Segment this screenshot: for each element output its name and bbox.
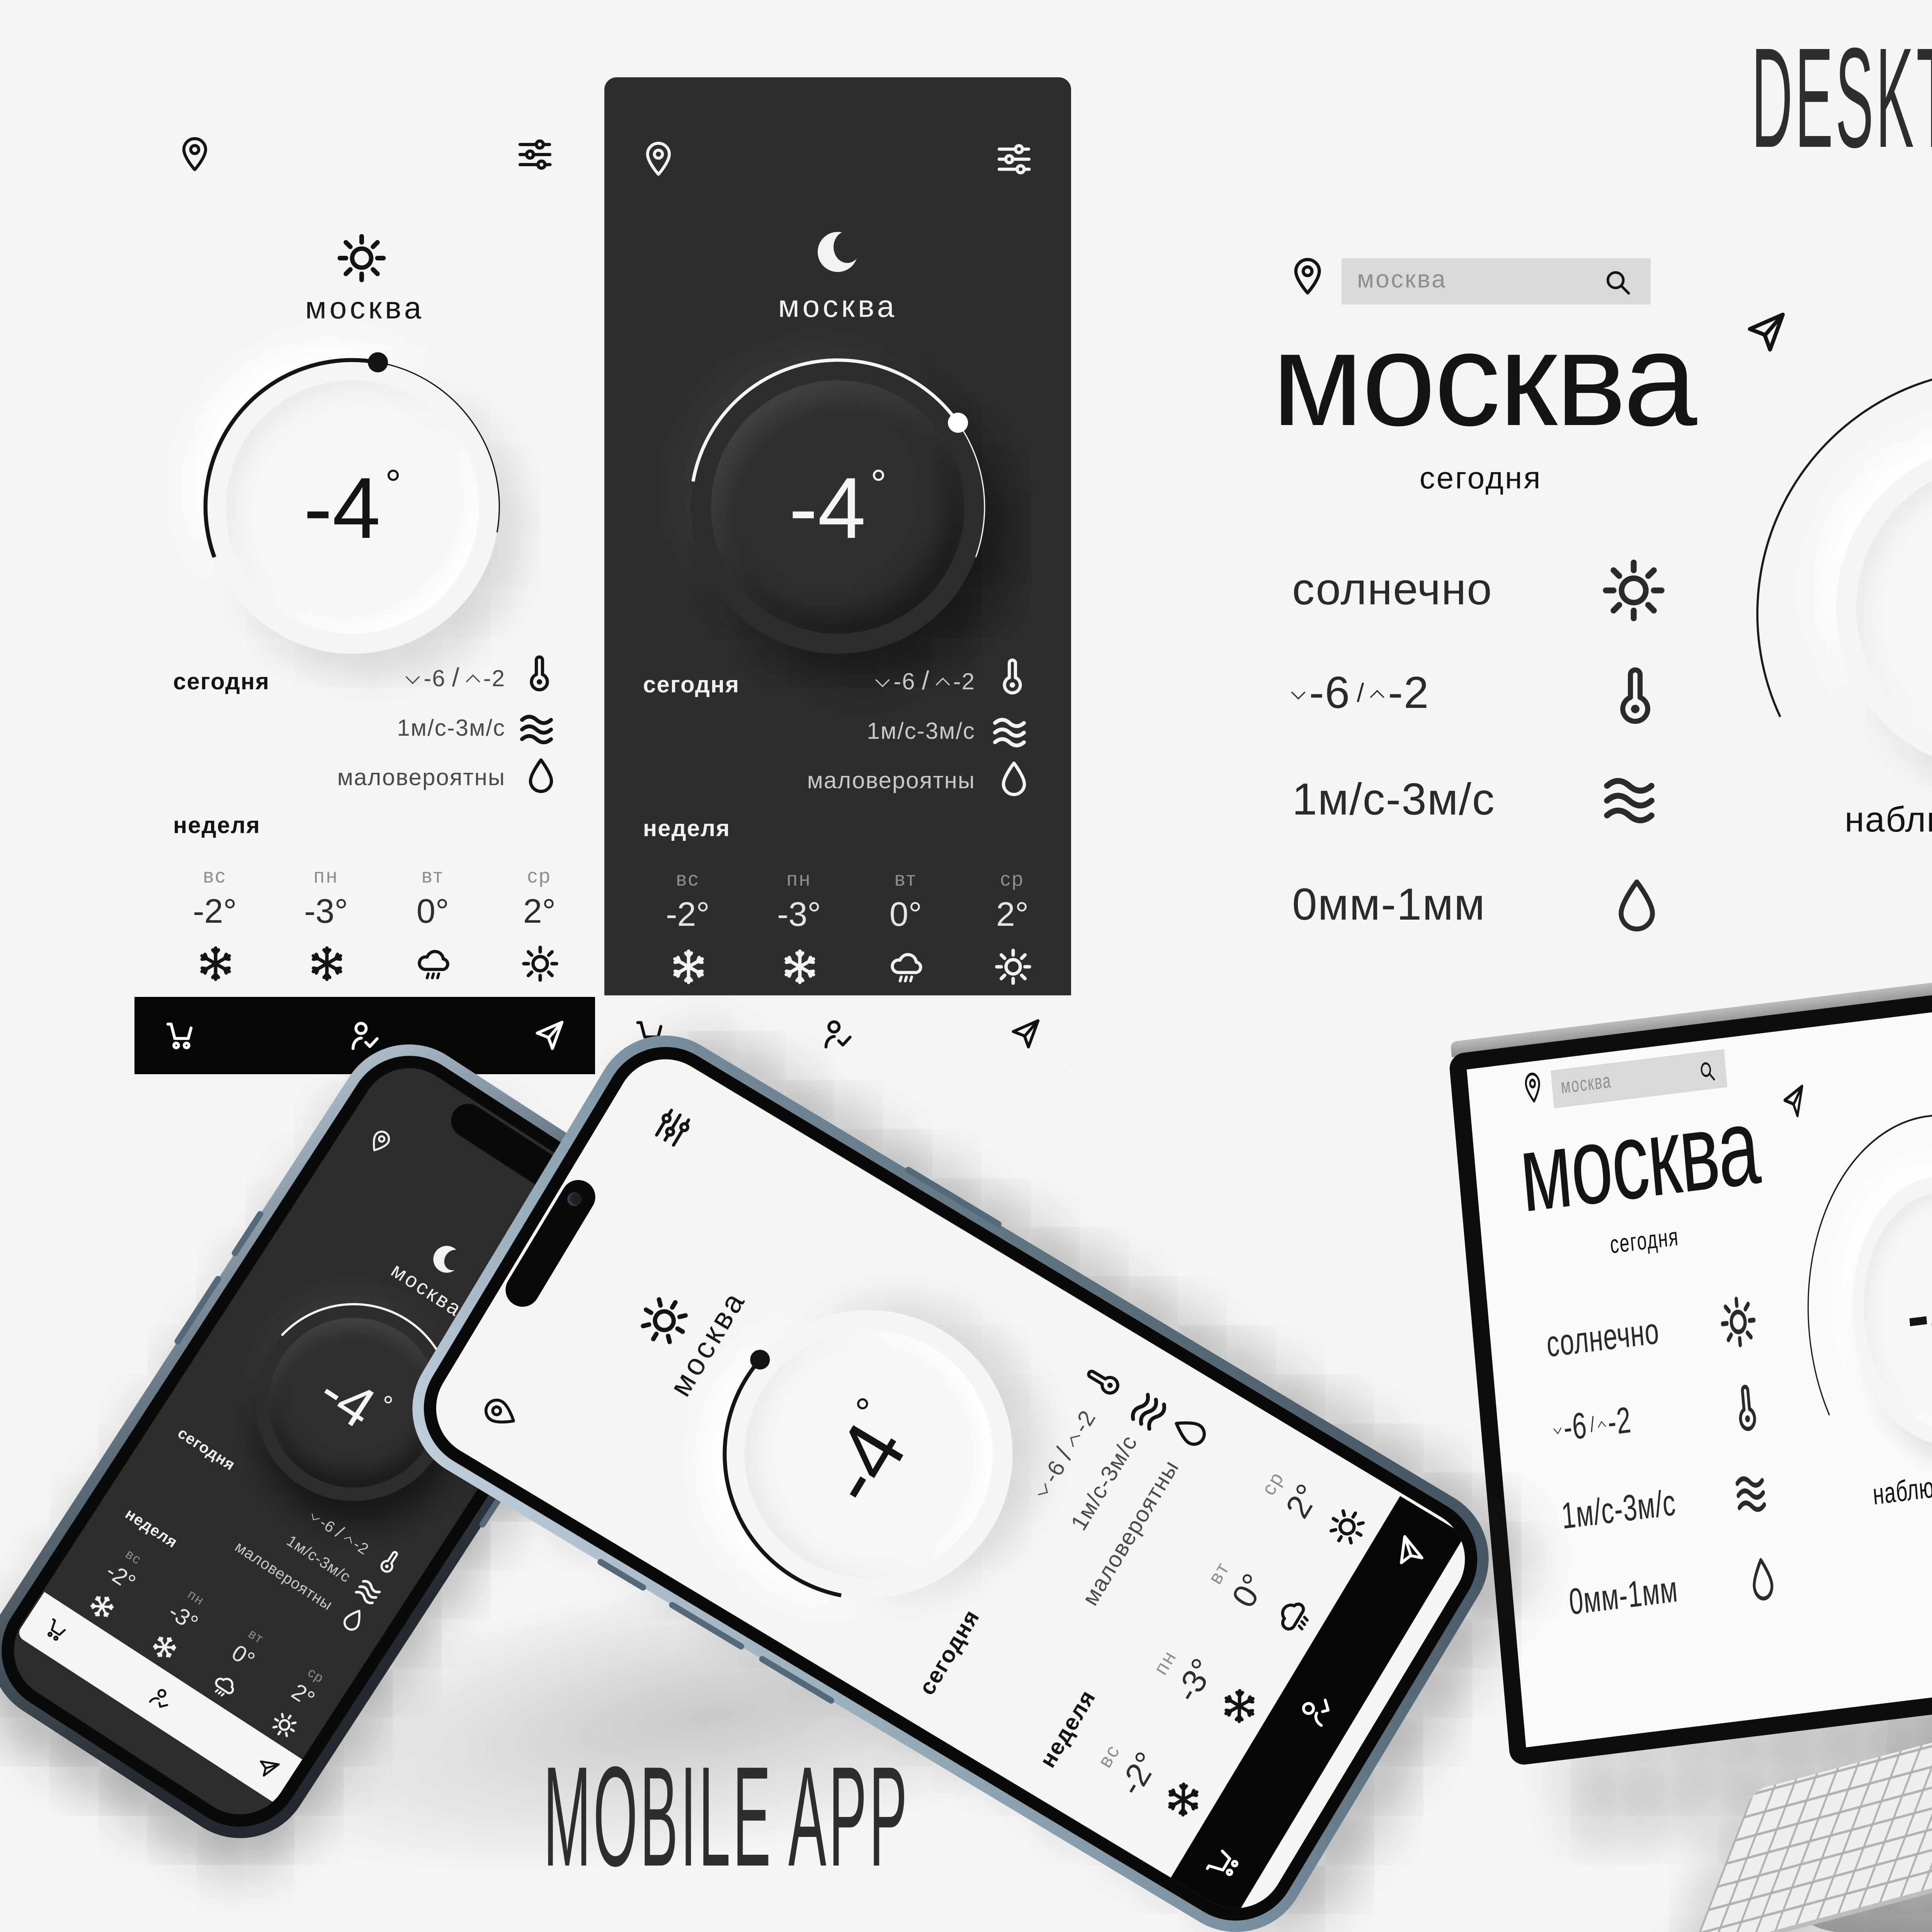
- rain-cloud-icon: [385, 943, 481, 985]
- location-icon: [474, 1386, 528, 1440]
- navigate-button[interactable]: [1006, 1015, 1043, 1053]
- navigate-button: [1384, 1529, 1434, 1579]
- daylight-arc: [683, 352, 992, 662]
- minmax-row: -6 / -2: [1552, 1376, 1768, 1458]
- day-forecast[interactable]: пн-3°: [751, 867, 847, 988]
- sunset-preposition: в: [1768, 849, 1932, 879]
- thermometer-icon: [1725, 1376, 1768, 1437]
- today-label: сегодня: [643, 672, 740, 699]
- condition-row: солнечно: [1544, 1291, 1760, 1375]
- minmax-row: -6 / -2: [1292, 660, 1669, 728]
- day-forecast[interactable]: ср2°: [492, 864, 587, 985]
- today-wind: 1м/с-3м/с: [759, 719, 975, 745]
- account-button[interactable]: [346, 1017, 383, 1054]
- search-icon[interactable]: [1697, 1057, 1717, 1085]
- droplet-icon: [992, 757, 1036, 801]
- chevron-up-icon: [935, 677, 949, 692]
- temperature-dial: -4°: [1836, 444, 1932, 771]
- sun-icon: [964, 946, 1060, 988]
- droplet-icon: [519, 754, 563, 798]
- snowflake-icon: [278, 943, 374, 985]
- sunset-caption: наблюдайте закат: [1768, 799, 1932, 841]
- mobile-screen-light: москва -4° сегодня -6 / -2 1м/с-3м/с мал…: [134, 104, 595, 1074]
- location-icon[interactable]: [175, 134, 215, 175]
- precip-row: 0мм-1мм: [1567, 1551, 1783, 1630]
- location-icon[interactable]: [638, 139, 679, 179]
- thermometer-icon: [370, 1541, 410, 1581]
- sun-icon: [1598, 555, 1669, 626]
- wind-icon: [1598, 765, 1669, 836]
- navigate-button[interactable]: [530, 1017, 567, 1054]
- city-label: москва: [134, 292, 595, 328]
- monitor-screen: москва сегодня солнечно -6 / -2 1м/с-3м/…: [1467, 961, 1932, 1747]
- desktop-ui: москва сегодня солнечно -6 / -2 1м/с-3м/…: [1221, 252, 1932, 986]
- snowflake-icon: [167, 943, 263, 985]
- design-canvas: москва -4° сегодня -6 / -2 1м/с-3м/с мал…: [0, 0, 1932, 1932]
- week-label: неделя: [643, 816, 730, 842]
- location-icon[interactable]: [1519, 1069, 1547, 1107]
- sunset-time: 16:55: [1768, 879, 1932, 927]
- settings-sliders-icon: [645, 1101, 699, 1155]
- cart-button: [1199, 1838, 1248, 1888]
- thermometer-icon: [1073, 1351, 1131, 1410]
- daylight-arc: [198, 352, 507, 662]
- wind-row: 1м/с-3м/с: [1559, 1462, 1776, 1546]
- day-forecast[interactable]: пн-3°: [278, 864, 374, 985]
- navigate-button: [249, 1750, 284, 1784]
- chevron-up-icon: [1370, 690, 1384, 704]
- today-precip: маловероятны: [227, 765, 505, 791]
- city-title: москва: [1221, 314, 1747, 447]
- today-minmax: -6 / -2: [759, 666, 975, 697]
- day-forecast[interactable]: вт0°: [858, 867, 954, 988]
- wind-icon: [516, 706, 563, 753]
- chevron-down-icon: [406, 669, 420, 683]
- sun-icon: [1716, 1291, 1760, 1354]
- wind-icon: [1731, 1462, 1776, 1525]
- settings-sliders-icon[interactable]: [515, 134, 555, 175]
- snowflake-icon: [640, 946, 736, 988]
- location-icon[interactable]: [1286, 255, 1329, 298]
- chevron-down-icon: [876, 672, 890, 686]
- mobile-screen-dark: москва -4° сегодня -6 / -2 1м/с-3м/с мал…: [604, 77, 1071, 1073]
- account-button[interactable]: [819, 1015, 856, 1053]
- monitor-mockup: москва сегодня солнечно -6 / -2 1м/с-3м/…: [1448, 942, 1932, 1767]
- cart-button: [39, 1613, 73, 1648]
- sun-icon: [334, 230, 389, 286]
- today-label: сегодня: [173, 669, 270, 696]
- cart-button[interactable]: [162, 1017, 199, 1054]
- thermometer-icon: [1601, 660, 1669, 728]
- precip-row: 0мм-1мм: [1292, 873, 1669, 938]
- day-forecast[interactable]: вт0°: [385, 864, 481, 985]
- thermometer-icon: [991, 654, 1034, 697]
- wind-row: 1м/с-3м/с: [1292, 765, 1669, 836]
- droplet-icon: [1742, 1551, 1783, 1608]
- search-icon[interactable]: [1601, 266, 1634, 298]
- moon-icon: [808, 223, 867, 281]
- week-label: неделя: [173, 813, 260, 839]
- desktop-ui-on-monitor: москва сегодня солнечно -6 / -2 1м/с-3м/…: [1483, 974, 1932, 1674]
- desktop-app-heading: DESKTOP APP: [1577, 56, 1932, 139]
- droplet-icon: [1604, 873, 1669, 938]
- day-forecast[interactable]: ср2°: [964, 867, 1060, 988]
- day-forecast[interactable]: вс-2°: [640, 867, 736, 988]
- current-temperature: -4°: [1836, 444, 1932, 771]
- today-label: сегодня: [1345, 462, 1617, 498]
- account-button: [144, 1682, 179, 1716]
- location-icon: [361, 1123, 398, 1160]
- chevron-down-icon: [1291, 684, 1305, 699]
- city-label: москва: [604, 291, 1071, 326]
- rain-cloud-icon: [858, 946, 954, 988]
- condition-row: солнечно: [1292, 555, 1669, 626]
- day-forecast[interactable]: вс-2°: [167, 864, 263, 985]
- chevron-up-icon: [465, 674, 480, 689]
- account-button: [1291, 1684, 1341, 1734]
- thermometer-icon: [518, 651, 561, 694]
- sun-icon: [492, 943, 587, 985]
- city-title: москва: [1487, 1088, 1791, 1233]
- wind-icon: [989, 709, 1036, 756]
- today-minmax: -6 / -2: [289, 663, 505, 694]
- today-precip: маловероятны: [697, 768, 975, 794]
- settings-sliders-icon[interactable]: [994, 139, 1034, 179]
- snowflake-icon: [751, 946, 847, 988]
- today-wind: 1м/с-3м/с: [289, 716, 505, 742]
